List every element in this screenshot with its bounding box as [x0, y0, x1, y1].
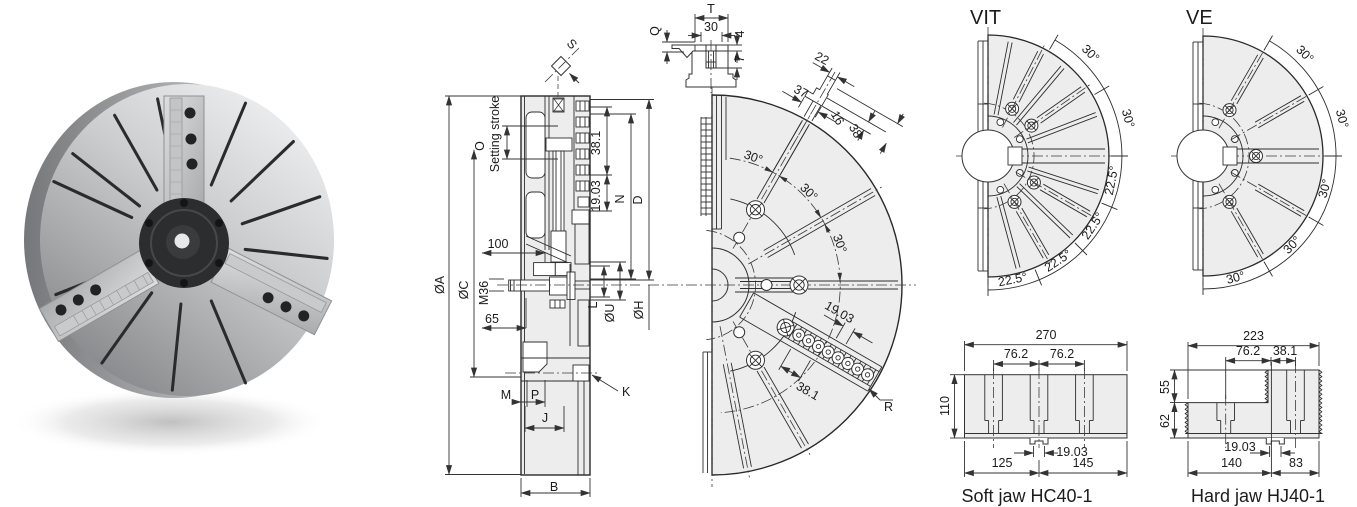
svg-text:Setting stroke: Setting stroke — [488, 96, 502, 172]
svg-text:L: L — [586, 301, 600, 308]
svg-text:K: K — [622, 385, 631, 399]
svg-text:65: 65 — [485, 312, 499, 326]
svg-text:J: J — [542, 411, 548, 425]
svg-text:P: P — [531, 388, 539, 402]
svg-text:ØH: ØH — [632, 301, 646, 320]
svg-text:7: 7 — [733, 55, 747, 62]
svg-text:62: 62 — [1158, 414, 1172, 428]
svg-text:125: 125 — [992, 456, 1013, 470]
svg-text:140: 140 — [1221, 456, 1242, 470]
svg-text:Soft jaw HC40-1: Soft jaw HC40-1 — [961, 486, 1092, 506]
svg-text:O: O — [473, 141, 487, 151]
svg-text:55: 55 — [1158, 380, 1172, 394]
svg-text:110: 110 — [938, 396, 952, 416]
svg-text:M: M — [501, 388, 511, 402]
svg-text:83: 83 — [1289, 456, 1303, 470]
svg-text:30: 30 — [704, 20, 718, 34]
svg-text:Q: Q — [648, 26, 662, 36]
svg-text:R: R — [884, 400, 893, 414]
svg-text:M36: M36 — [477, 281, 491, 305]
svg-text:T: T — [707, 2, 715, 16]
svg-text:4: 4 — [733, 30, 747, 37]
svg-text:38.1: 38.1 — [589, 131, 603, 155]
svg-text:76.2: 76.2 — [1050, 347, 1074, 361]
svg-text:ØC: ØC — [457, 281, 471, 300]
svg-text:19.03: 19.03 — [1224, 440, 1255, 454]
svg-text:D: D — [631, 195, 645, 204]
svg-text:VE: VE — [1186, 7, 1213, 29]
svg-text:19.03: 19.03 — [589, 180, 603, 211]
svg-text:ØU: ØU — [603, 304, 617, 323]
svg-text:ØA: ØA — [433, 275, 447, 294]
svg-text:B: B — [550, 480, 558, 494]
svg-text:145: 145 — [1073, 456, 1094, 470]
svg-text:76.2: 76.2 — [1004, 347, 1028, 361]
svg-text:38.1: 38.1 — [1273, 344, 1297, 358]
svg-text:223: 223 — [1243, 329, 1264, 343]
svg-text:100: 100 — [488, 237, 509, 251]
svg-text:Hard jaw HJ40-1: Hard jaw HJ40-1 — [1191, 486, 1325, 506]
svg-text:N: N — [613, 194, 627, 203]
svg-text:VIT: VIT — [970, 7, 1001, 29]
svg-text:270: 270 — [1036, 328, 1057, 342]
svg-text:76.2: 76.2 — [1236, 344, 1260, 358]
